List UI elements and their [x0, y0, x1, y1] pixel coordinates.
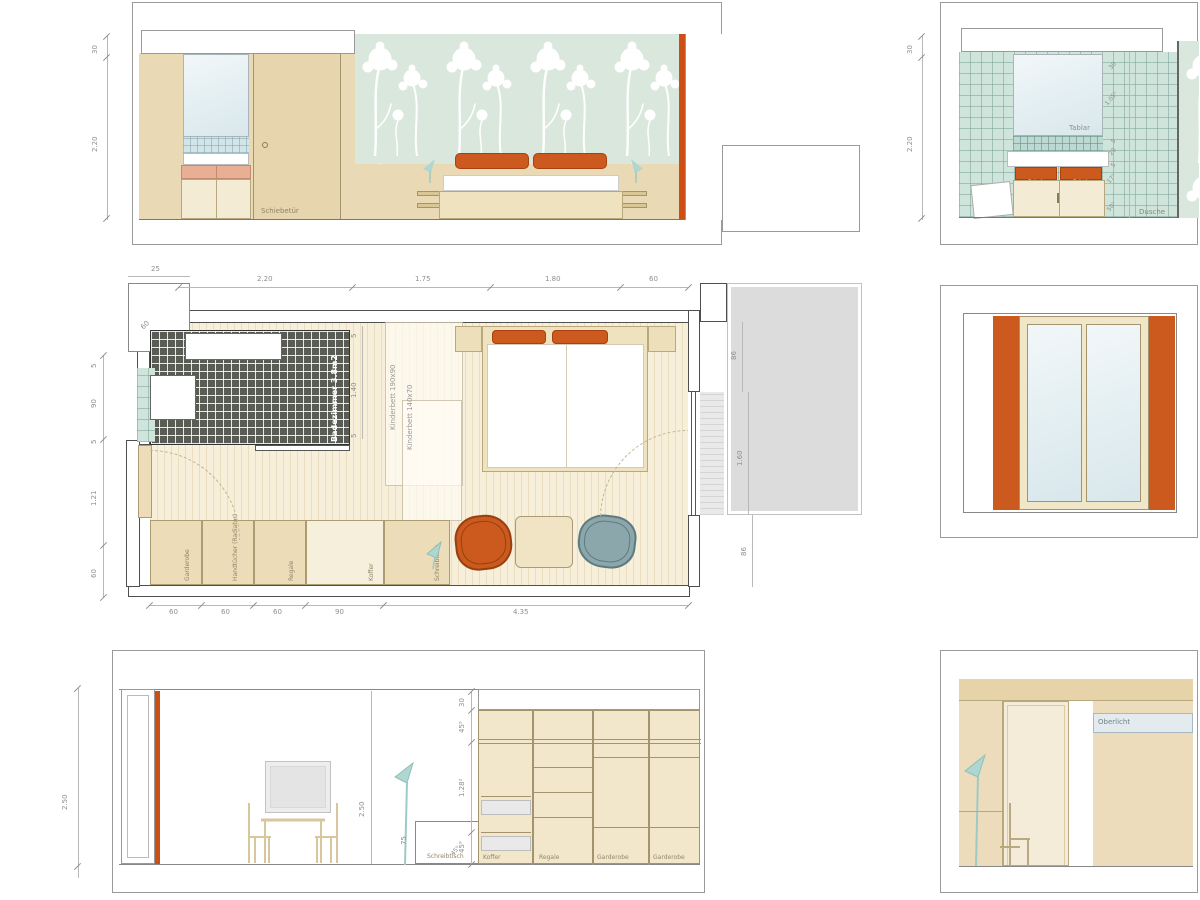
wardrobe-shelf [481, 796, 531, 797]
dim-label: 90 [335, 609, 344, 616]
dim-line [752, 515, 753, 587]
vanity-drawer: Schub [1060, 167, 1102, 180]
dim-label: 60 [273, 609, 282, 616]
dim-label: 1.21 [91, 480, 98, 506]
window-pane [1086, 324, 1141, 502]
wardrobe-shelf [534, 792, 592, 793]
dim-label: 1.60 [737, 440, 744, 466]
dim-label: 25 [151, 266, 160, 273]
backsplash-tiles [1013, 136, 1103, 151]
pillow-plan [552, 330, 608, 344]
skylight-label: Oberlicht [1098, 719, 1130, 726]
window-pane-line [127, 695, 149, 858]
dim-label: 30 [459, 695, 466, 707]
dim-line [149, 605, 688, 606]
nightstand-plan [648, 326, 676, 352]
wardrobe-label: Koffer [483, 855, 501, 861]
dim-label: 2.20 [92, 122, 99, 152]
drawer-divider [216, 166, 217, 178]
toilet-plan [150, 375, 196, 420]
dim-label: 1.40 [351, 372, 358, 398]
dim-line [1129, 52, 1130, 218]
floor-line [139, 219, 685, 220]
wall-edge-line [1177, 41, 1179, 218]
nightstand-shelf [621, 203, 647, 208]
soffit-band [959, 679, 1193, 701]
dim-line [742, 322, 743, 392]
dim-line [103, 355, 104, 597]
dim-line [748, 392, 749, 515]
door-handle-icon [262, 142, 268, 148]
headboard-cushion [533, 153, 607, 169]
dim-label: 60 [169, 609, 178, 616]
threshold-strip [700, 392, 724, 515]
shelf-label: Tablar [1069, 125, 1090, 132]
window-side [121, 689, 155, 864]
floor-lamp-icon [391, 759, 417, 866]
wardrobe [478, 710, 700, 864]
bed-base [439, 191, 623, 219]
floor-lamp-icon [423, 538, 445, 570]
wardrobe-shelf [650, 827, 699, 828]
dim-label: 45⁹ [459, 837, 466, 853]
table-and-chairs-icon [241, 791, 345, 864]
dim-line [128, 276, 190, 277]
dim-label: 60 [221, 609, 230, 616]
dim-tick [103, 215, 110, 222]
dim-tick [100, 594, 107, 601]
dim-label: 86 [741, 540, 748, 556]
beanbag-seam [459, 519, 508, 566]
balcony-door-glazing [691, 392, 696, 515]
bath-sliding-door-plan [255, 445, 350, 451]
headboard-cushion [455, 153, 529, 169]
hanging-rod [650, 757, 699, 758]
balcony-section-box [722, 145, 860, 232]
dim-label: 2.20 [907, 122, 914, 152]
balcony-deck [731, 287, 858, 511]
wardrobe-divider [592, 711, 594, 865]
wall-lamp-icon [629, 157, 645, 183]
wall-lamp-icon [421, 157, 437, 183]
dim-tick [685, 284, 692, 291]
wardrobe-label: Garderobe [597, 855, 629, 861]
floor-line [959, 866, 1193, 867]
sliding-door-label: Schiebetür [261, 208, 299, 215]
beanbag-seam [582, 518, 633, 564]
plan-regale [254, 520, 306, 585]
elevation-bed-sheet: Schiebetür [132, 2, 722, 245]
dim-label: 30 [92, 38, 99, 54]
wardrobe-shelf [479, 743, 701, 744]
desk-label: Schreibtisch [427, 854, 464, 860]
dim-label: 60 [91, 562, 98, 578]
towel [970, 181, 1013, 219]
elevation-room-sheet: 2.50 Schreibtisch 75 45⁹ 30 45⁹ 1.28² 45… [112, 650, 705, 893]
wardrobe-shelf [594, 827, 648, 828]
dim-label: 1.80 [545, 276, 561, 283]
dim-label: 5 [351, 328, 358, 338]
dim-label: 2.50 [359, 789, 366, 817]
dim-label: 5 [91, 358, 98, 368]
bathroom-label: Badezimmer 3.8m2 [331, 332, 339, 442]
wardrobe-divider [532, 711, 534, 865]
dim-label: 75 [401, 831, 408, 845]
door-swing-arc [150, 450, 240, 540]
curtain-stripe [155, 691, 160, 864]
wall-opening [1069, 701, 1093, 866]
duvet-split-line [566, 345, 567, 467]
washbasin-counter [1007, 151, 1109, 167]
dim-label: 60 [649, 276, 658, 283]
dim-line [371, 691, 372, 864]
dim-line [362, 326, 363, 439]
dim-line [471, 691, 472, 864]
elevation-bath-sheet: Tablar Schub Schub Dusche 30 1.05⁵ 5 20 … [940, 2, 1198, 245]
wardrobe-drawer [481, 800, 531, 815]
dim-label: 2.20 [257, 276, 273, 283]
wallpaper-strip [1179, 41, 1199, 218]
dim-line [922, 36, 923, 220]
window-reveal [685, 34, 722, 220]
floor-plan: 25 60 Badezimmer 3.8m2 5 1.40 5 Kinderbe… [85, 262, 960, 652]
dim-line [178, 287, 688, 288]
pink-drawers [181, 165, 251, 179]
dim-tick [685, 602, 692, 609]
wardrobe-shelf [534, 817, 592, 818]
hanging-rod [594, 757, 648, 758]
floor-lamp-icon [959, 749, 989, 867]
vanity-drawer: Schub [1015, 167, 1057, 180]
cabinet-handle [1057, 193, 1059, 203]
washbasin-counter [183, 153, 249, 165]
curtain-stripe [993, 316, 1019, 510]
wardrobe-label: Regale [539, 855, 559, 861]
soffit-band [961, 28, 1163, 52]
curtain-stripe [1149, 316, 1175, 510]
wall-bottom [128, 585, 690, 597]
wardrobe-shelf [479, 739, 701, 740]
dim-label: 30 [907, 38, 914, 54]
washbasin-plan [185, 333, 282, 360]
vanity-cabinet [1013, 180, 1105, 217]
cabinet-door-divider [1059, 181, 1060, 216]
window-pane [1027, 324, 1082, 502]
wall-right-lower [688, 515, 700, 587]
arc-curve [150, 450, 240, 540]
dim-label: 1.28² [459, 775, 466, 797]
wardrobe-shelf [534, 767, 592, 768]
chair-icon [996, 799, 1038, 867]
wall-balcony-jog [700, 283, 727, 322]
side-table-plan [515, 516, 573, 568]
dim-label: 1.75 [415, 276, 431, 283]
dim-label: 4.35 [513, 609, 529, 616]
dim-label: 86 [731, 344, 738, 360]
furniture-label: Koffer [369, 526, 375, 581]
wardrobe-label: Garderobe [653, 855, 685, 861]
floor-line [959, 217, 1177, 218]
dim-tick [918, 215, 925, 222]
wall-right-upper [688, 310, 700, 392]
soffit-band [141, 30, 355, 54]
wardrobe-shelf [481, 832, 531, 833]
pillow-plan [492, 330, 546, 344]
wardrobe-drawer [481, 836, 531, 851]
shower-label: Dusche [1139, 209, 1165, 216]
bed-mattress [443, 175, 619, 191]
balcony-door-swing-arc [600, 430, 688, 518]
arc-curve [600, 430, 688, 518]
elevation-detail-sheet: Oberlicht [940, 650, 1198, 893]
furniture-label: Regale [289, 526, 295, 581]
dim-line [107, 36, 108, 220]
bathroom-mirror-panel [183, 54, 249, 137]
childbed-label: Kinderbett 190x90 [390, 328, 397, 430]
dim-label: 5 [91, 434, 98, 444]
dim-line [78, 688, 79, 878]
dim-label: 45⁹ [459, 717, 466, 733]
vanity-cabinet [181, 179, 251, 219]
dim-label: 90 [91, 390, 98, 408]
sliding-door [253, 53, 341, 220]
nightstand-plan [455, 326, 482, 352]
nightstand-shelf [621, 191, 647, 196]
dim-label: 5 [351, 428, 358, 438]
wardrobe-top-band [478, 689, 700, 710]
backsplash-tiles [183, 137, 249, 153]
dim-label: 2.50 [62, 782, 69, 810]
childbed-label: Kinderbett 140x70 [407, 362, 414, 450]
floral-wallpaper [355, 34, 681, 164]
wardrobe-divider [648, 711, 650, 865]
window-detail-sheet [940, 285, 1198, 538]
cabinet-door-divider [216, 180, 217, 218]
